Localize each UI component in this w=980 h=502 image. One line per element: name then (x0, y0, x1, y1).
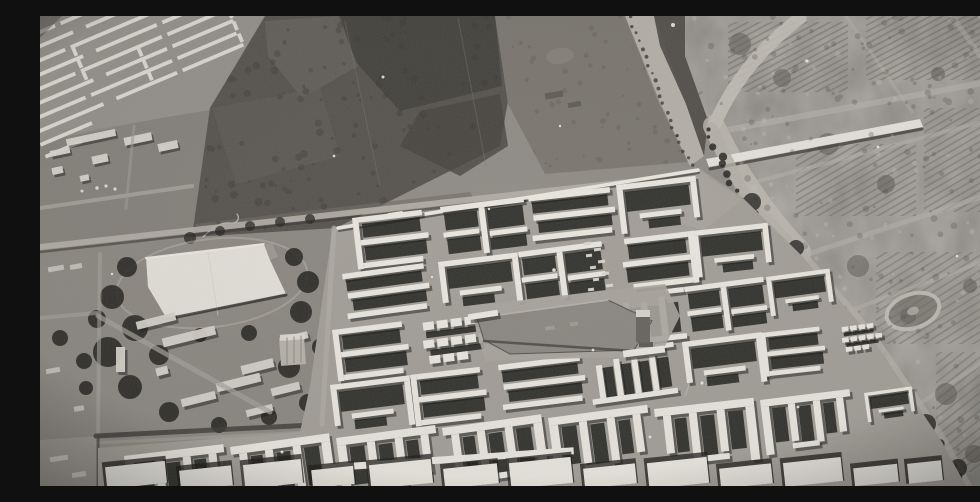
aerial-photograph (40, 16, 980, 486)
vignette (40, 16, 980, 486)
aerial-photograph-canvas (40, 16, 980, 486)
photo-artifacts (40, 16, 980, 486)
